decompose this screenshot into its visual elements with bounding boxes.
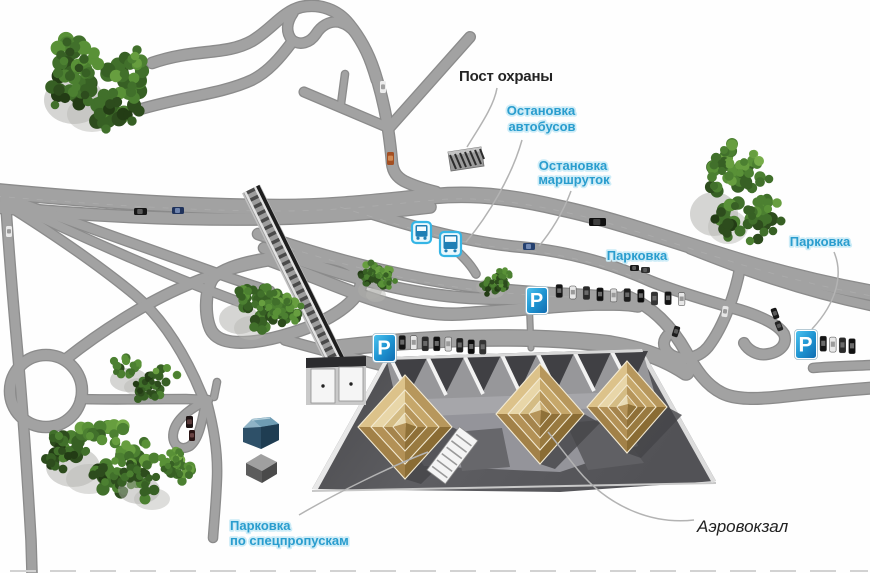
svg-text:P: P [530, 290, 543, 312]
svg-text:Пост охраны: Пост охраны [459, 68, 553, 85]
svg-text:Остановка: Остановка [507, 103, 576, 118]
svg-text:маршруток: маршруток [538, 172, 610, 187]
svg-text:по спецпропускам: по спецпропускам [230, 533, 349, 548]
svg-text:P: P [377, 338, 390, 360]
svg-text:P: P [798, 334, 812, 357]
svg-text:автобусов: автобусов [508, 119, 575, 134]
svg-text:Парковка: Парковка [790, 234, 851, 249]
svg-text:Остановка: Остановка [539, 158, 608, 173]
svg-text:Парковка: Парковка [230, 518, 291, 533]
svg-text:Аэровокзал: Аэровокзал [696, 517, 789, 536]
svg-text:Парковка: Парковка [607, 248, 668, 263]
